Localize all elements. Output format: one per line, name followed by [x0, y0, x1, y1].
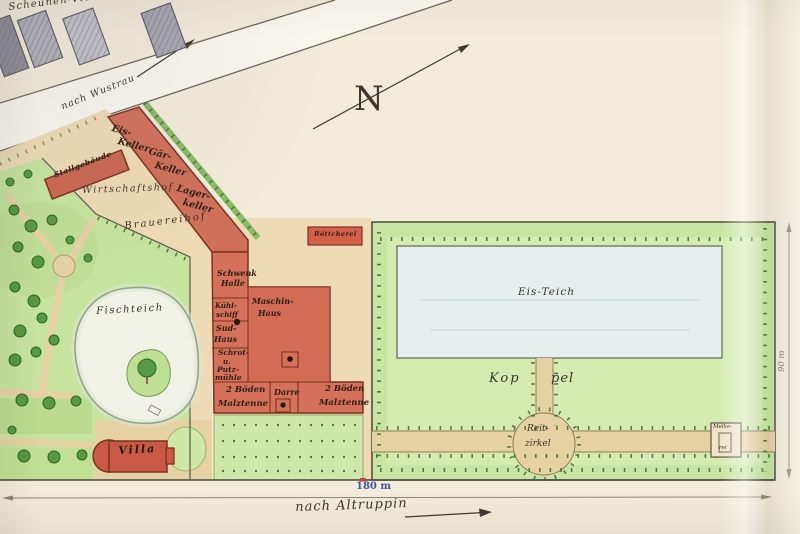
koppel-paddock	[372, 222, 775, 480]
label-maschinen-haus-2: Haus	[258, 309, 281, 317]
label-boettcherei: Böttcherei	[314, 231, 357, 238]
label-melkerei-1: Melke-	[713, 425, 732, 431]
north-arrow	[313, 44, 470, 129]
label-maschinen-haus-1: Maschin-	[252, 297, 293, 305]
label-sudhaus-1: Sud-	[216, 324, 237, 332]
label-darre: Darre	[274, 388, 300, 396]
label-malztenne-right-2: Malztenne	[319, 399, 369, 408]
chimney-dot-icon	[280, 402, 285, 407]
label-malztenne-left-1: 2 Böden	[226, 386, 265, 395]
label-koppel-2: pel	[551, 372, 574, 386]
hand-drawn-estate-plan: Scheunen-Viertel nach Wustrau N Stallgeb…	[0, 0, 800, 534]
chimney-dot-icon	[287, 356, 293, 362]
label-reitzirkel-2: zirkel	[525, 440, 551, 449]
island-tree-icon	[138, 359, 156, 377]
label-reitzirkel-1: Reit-	[527, 425, 549, 434]
label-eis-teich: Eis-Teich	[518, 287, 575, 298]
label-schrot-4: mühle	[215, 374, 241, 382]
label-melkerei-2: rei	[719, 446, 727, 452]
label-schwenk-halle-1: Schwenk	[217, 269, 257, 277]
altruppin-arrow-head-icon	[479, 509, 492, 518]
label-dim-90m: 90 m	[778, 350, 787, 372]
label-malztenne-left-2: Malztenne	[218, 400, 268, 409]
label-koppel-1: Kop	[489, 372, 521, 386]
label-dim-180m: 180 m	[356, 482, 391, 493]
label-kuehlschiff-2: schiff	[216, 311, 238, 318]
label-kuehlschiff-1: Kühl-	[215, 302, 237, 309]
north-arrow-head-icon	[458, 44, 470, 53]
label-schwenk-halle-2: Halle	[221, 279, 245, 287]
park-plaza	[53, 255, 75, 277]
label-north: N	[354, 82, 384, 118]
label-malztenne-right-1: 2 Böden	[325, 385, 364, 394]
label-schrot-1: Schrot-	[218, 349, 249, 357]
garden-plot	[214, 415, 363, 480]
label-villa: Villa	[118, 443, 157, 457]
eis-teich-pond	[397, 246, 722, 358]
label-sudhaus-2: Haus	[214, 335, 237, 343]
altruppin-arrow	[405, 509, 492, 518]
